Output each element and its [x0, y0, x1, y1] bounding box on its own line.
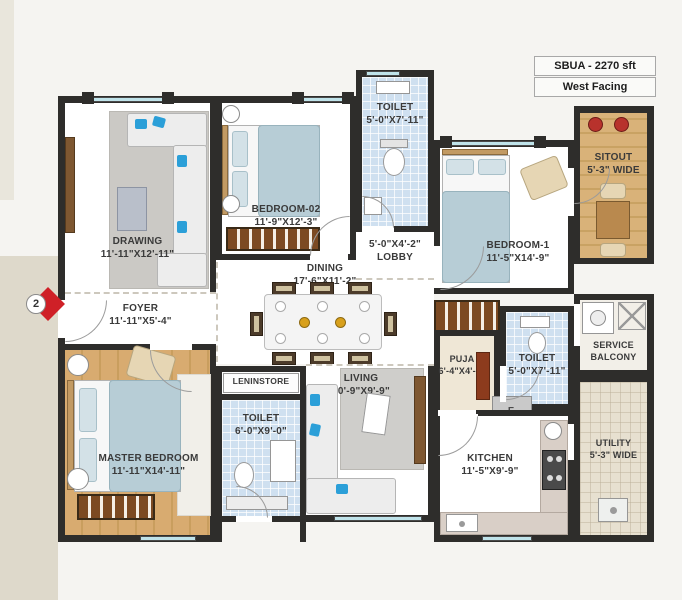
- plate-icon: [275, 333, 286, 344]
- utility-dim: 5'-3" WIDE: [580, 450, 647, 462]
- wc-icon: [383, 148, 405, 176]
- plate-icon: [275, 301, 286, 312]
- wall-stub: [216, 522, 222, 542]
- side-table-icon: [67, 354, 89, 376]
- wardrobe-icon: [434, 300, 500, 332]
- master-bedroom-name: MASTER BEDROOM: [87, 452, 210, 465]
- open-boundary: [306, 364, 434, 366]
- bowl-icon: [299, 317, 310, 328]
- facing-label: West Facing: [534, 77, 656, 97]
- window: [140, 536, 196, 541]
- bed-pillow-icon: [79, 388, 97, 432]
- bowl-icon: [335, 317, 346, 328]
- dining-table-icon: [264, 294, 382, 350]
- sitout-name: SITOUT: [580, 151, 647, 164]
- window: [366, 71, 400, 76]
- room-puja: PUJA 6'-4"X4'-5": [434, 330, 500, 420]
- pillow-icon: [310, 394, 320, 406]
- plate-icon: [359, 301, 370, 312]
- toilet-top-name: TOILET: [362, 101, 428, 114]
- door-gap: [568, 424, 574, 460]
- room-dining: DINING 17'-6"X11'-2": [216, 260, 434, 364]
- dining-name: DINING: [216, 262, 434, 275]
- chair-icon: [600, 243, 626, 257]
- wall-pier: [440, 136, 452, 148]
- dining-chair-icon: [272, 352, 296, 365]
- open-boundary: [216, 262, 218, 362]
- washing-machine-icon: [582, 302, 614, 334]
- shower-tray-icon: [270, 440, 296, 482]
- room-living: LIVING 10'-9"X9'-9": [306, 364, 434, 522]
- plant-pot-icon: [614, 117, 629, 132]
- sofa-icon: [306, 478, 396, 514]
- sbua-label: SBUA - 2270 sft: [534, 56, 656, 76]
- master-bedroom-dim: 11'-11"X14'-11": [87, 465, 210, 478]
- wall-pier: [342, 92, 354, 104]
- wall-pier: [82, 92, 94, 104]
- leninstore-label: LENINSTORE: [222, 376, 300, 387]
- duct-icon: [618, 302, 646, 330]
- entry-marker: 2: [24, 284, 64, 324]
- window: [334, 516, 422, 521]
- wall-pier: [534, 136, 546, 148]
- toilet-left-label: TOILET 6'-0"X9'-0": [222, 412, 300, 438]
- washbasin-icon: [376, 81, 410, 94]
- window: [482, 536, 532, 541]
- bedroom-02-name: BEDROOM-02: [222, 203, 350, 216]
- wall-stub: [300, 522, 306, 542]
- utility-label: UTILITY 5'-3" WIDE: [580, 438, 647, 461]
- side-table-icon: [222, 105, 240, 123]
- wardrobe-icon: [77, 494, 155, 520]
- room-leninstore: LENINSTORE: [216, 366, 306, 400]
- drawing-name: DRAWING: [65, 235, 210, 248]
- plate-icon: [317, 301, 328, 312]
- utility-sink-icon: [598, 498, 628, 522]
- room-drawing: DRAWING 11'-11"X12'-11": [58, 96, 216, 294]
- kitchen-label: KITCHEN 11'-5"X9'-9": [440, 452, 540, 478]
- bed-pillow-icon: [446, 159, 474, 175]
- toilet-top-label: TOILET 5'-0"X7'-11": [362, 101, 428, 127]
- kitchen-name: KITCHEN: [440, 452, 540, 465]
- bed-pillow-icon: [232, 131, 248, 167]
- wc-tank-icon: [380, 139, 408, 148]
- lobby-dim: 5'-0"X4'-2": [356, 238, 434, 251]
- stove-icon: [542, 450, 566, 490]
- pillow-icon: [177, 221, 187, 233]
- plan-info-box: SBUA - 2270 sft West Facing: [534, 56, 656, 97]
- floor-plan: SBUA - 2270 sft West Facing DRAWING 11'-…: [0, 0, 682, 600]
- wc-icon: [234, 462, 254, 488]
- entry-marker-number: 2: [26, 294, 46, 314]
- pillow-icon: [177, 155, 187, 167]
- toilet-left-dim: 6'-0"X9'-0": [222, 425, 300, 438]
- plate-icon: [317, 333, 328, 344]
- coffee-table-icon: [117, 187, 147, 231]
- drawing-label: DRAWING 11'-11"X12'-11": [65, 235, 210, 261]
- window: [446, 141, 538, 146]
- wardrobe-icon: [226, 227, 320, 251]
- rug-icon: [177, 374, 211, 516]
- sink-icon: [446, 514, 478, 532]
- washbasin-icon: [520, 316, 550, 328]
- kitchen-dim: 11'-5"X9'-9": [440, 465, 540, 478]
- dining-chair-icon: [250, 312, 263, 336]
- pillow-icon: [336, 484, 348, 494]
- bed-pillow-icon: [478, 159, 506, 175]
- room-master-bedroom: MASTER BEDROOM 11'-11"X14'-11": [58, 344, 216, 542]
- wall-pier: [162, 92, 174, 104]
- room-service-balcony: SERVICE BALCONY: [574, 294, 654, 376]
- toilet-top-dim: 5'-0"X7'-11": [362, 114, 428, 127]
- side-table-icon: [67, 468, 89, 490]
- open-boundary: [356, 278, 434, 280]
- door-gap: [574, 304, 580, 346]
- table-icon: [596, 201, 630, 239]
- service-balcony-label: SERVICE BALCONY: [580, 340, 647, 363]
- plant-pot-icon: [588, 117, 603, 132]
- window: [88, 97, 166, 102]
- dining-chair-icon: [384, 312, 397, 336]
- cabinet-icon: [65, 137, 75, 233]
- wall-pier: [292, 92, 304, 104]
- master-bedroom-label: MASTER BEDROOM 11'-11"X14'-11": [87, 452, 210, 478]
- open-boundary: [65, 292, 216, 294]
- toilet-left-name: TOILET: [222, 412, 300, 425]
- drawing-dim: 11'-11"X12'-11": [65, 248, 210, 261]
- pillow-icon: [135, 119, 147, 129]
- puja-cabinet-icon: [476, 352, 490, 400]
- washbasin-icon: [544, 422, 562, 440]
- service-balcony-line2: BALCONY: [580, 352, 647, 364]
- room-utility: UTILITY 5'-3" WIDE: [574, 376, 654, 542]
- service-balcony-line1: SERVICE: [580, 340, 647, 352]
- exterior-strip-top: [0, 0, 14, 200]
- utility-name: UTILITY: [580, 438, 647, 450]
- wc-icon: [528, 332, 546, 354]
- plate-icon: [359, 333, 370, 344]
- armchair-icon: [519, 155, 569, 202]
